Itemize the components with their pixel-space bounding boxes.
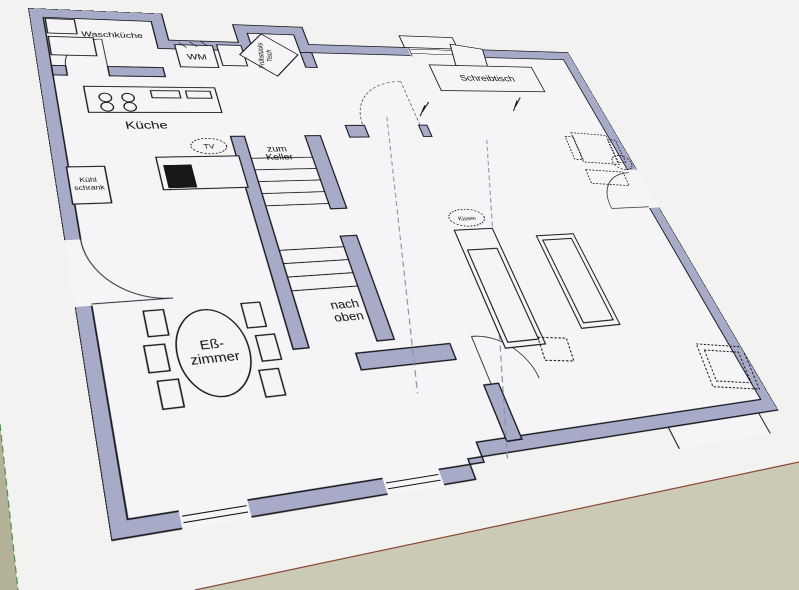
kitchen-label: Küche <box>124 119 169 131</box>
washing-machine-label: WM <box>186 53 208 62</box>
laundry-sink-unit <box>48 36 97 56</box>
pillow-label: Kissen <box>458 216 478 222</box>
window-sill <box>399 36 458 49</box>
desk-label: Schreibtisch <box>458 74 517 84</box>
dining-chair <box>143 310 169 337</box>
fridge-label-line2: schrank <box>74 184 107 192</box>
fridge-label-line1: Kühl <box>79 177 98 184</box>
dining-chair <box>144 344 170 373</box>
sink-basin <box>150 91 180 98</box>
sink-drainer <box>186 91 212 98</box>
stairs-down-label-line2: Keller <box>265 153 295 163</box>
tv-screen <box>163 165 197 189</box>
stairs-up-label-line2: oben <box>332 310 365 325</box>
tv-label: TV <box>203 142 216 150</box>
laundry-cabinet <box>45 18 77 33</box>
sketchup-3d-floorplan-view: { "floorplan": { "rooms": { "laundry": "… <box>0 0 799 590</box>
breakfast-table-label-line2: Tisch <box>264 49 275 63</box>
